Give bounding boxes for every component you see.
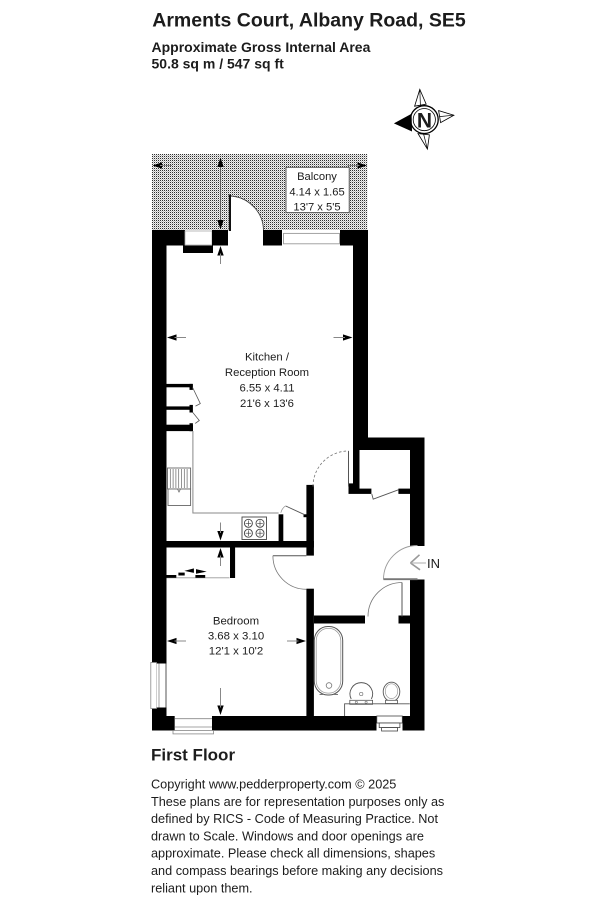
svg-text:6.55 x 4.11: 6.55 x 4.11 xyxy=(239,383,294,395)
svg-text:drawn to Scale. Windows and do: drawn to Scale. Windows and door opening… xyxy=(151,829,424,843)
svg-text:and compass bearings before ma: and compass bearings before making any d… xyxy=(151,864,443,878)
svg-text:Approximate Gross Internal Are: Approximate Gross Internal Area xyxy=(152,39,371,55)
svg-text:N: N xyxy=(417,109,432,132)
svg-text:Bedroom: Bedroom xyxy=(213,615,259,627)
svg-text:13'7 x 5'5: 13'7 x 5'5 xyxy=(293,201,340,213)
svg-text:50.8 sq m / 547 sq ft: 50.8 sq m / 547 sq ft xyxy=(152,56,285,72)
svg-text:4.14 x 1.65: 4.14 x 1.65 xyxy=(289,186,344,198)
svg-text:Copyright www.pedderproperty.c: Copyright www.pedderproperty.com © 2025 xyxy=(151,778,396,792)
svg-text:First Floor: First Floor xyxy=(151,746,235,765)
svg-text:IN: IN xyxy=(427,556,440,571)
svg-text:21'6 x 13'6: 21'6 x 13'6 xyxy=(240,398,294,410)
svg-text:Balcony: Balcony xyxy=(297,171,337,183)
svg-text:Reception Room: Reception Room xyxy=(225,367,309,379)
svg-text:Kitchen /: Kitchen / xyxy=(245,351,290,363)
svg-text:These plans are for representa: These plans are for representation purpo… xyxy=(151,795,444,809)
svg-text:defined by RICS - Code of Meas: defined by RICS - Code of Measuring Prac… xyxy=(151,812,438,826)
svg-text:12'1 x 10'2: 12'1 x 10'2 xyxy=(209,645,263,657)
svg-text:3.68 x 3.10: 3.68 x 3.10 xyxy=(208,630,264,642)
svg-text:approximate. Please check all: approximate. Please check all dimensions… xyxy=(151,847,435,861)
svg-text:Arments Court, Albany Road, SE: Arments Court, Albany Road, SE5 xyxy=(152,10,466,32)
svg-text:reliant upon them.: reliant upon them. xyxy=(151,881,253,895)
